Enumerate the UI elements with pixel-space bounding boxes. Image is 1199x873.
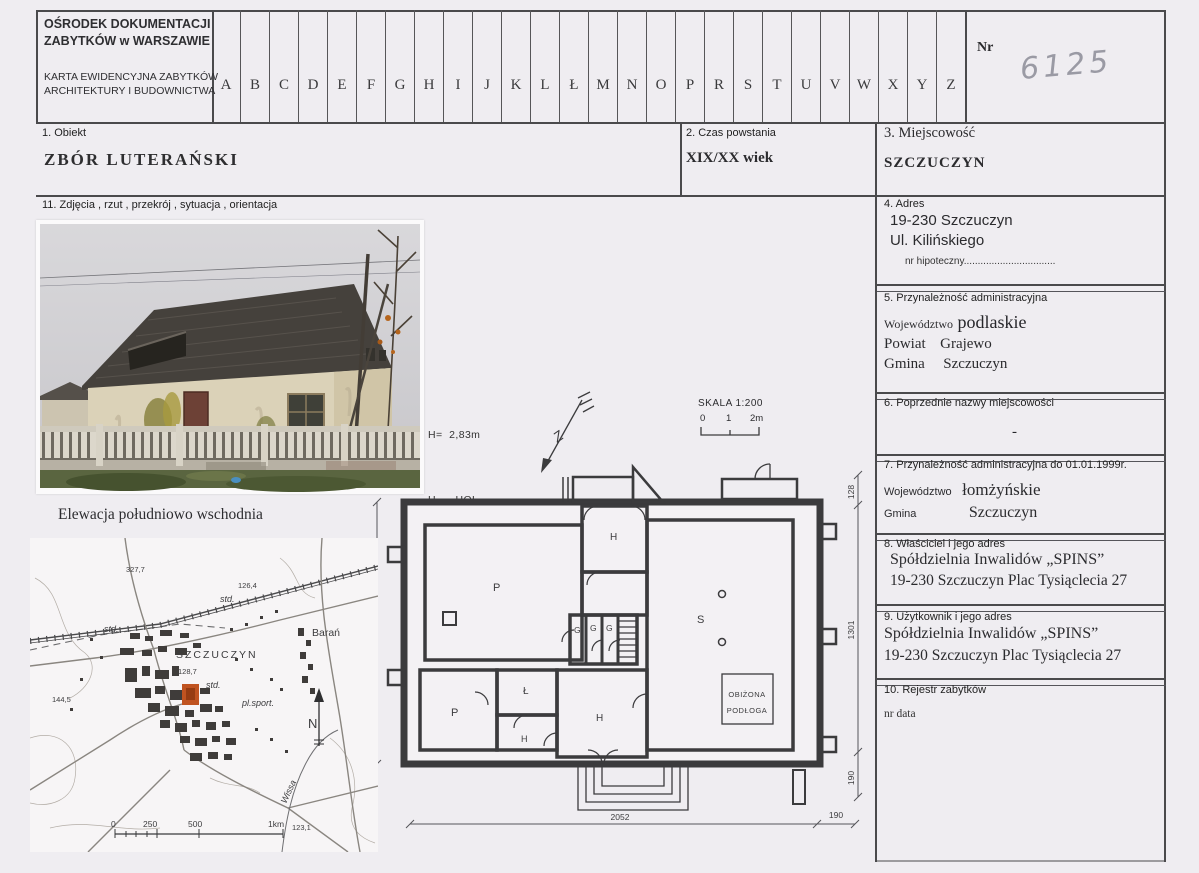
room-label-s: S (697, 614, 704, 626)
letter-cell: U (791, 10, 820, 122)
map-label-sport: pl.sport. (241, 698, 274, 708)
photo-caption: Elewacja południowo wschodnia (58, 506, 263, 524)
divider (36, 195, 1166, 197)
letter-cell: S (733, 10, 762, 122)
map-spot-height: 126,4 (238, 581, 257, 590)
section11-label: 11. Zdjęcia , rzut , przekrój , sytuacja… (42, 199, 277, 211)
section5-label: 5. Przynależność administracyjna (884, 292, 1047, 304)
letter-cell: K (501, 10, 530, 122)
map-label-town: SZCZUCZYN (176, 649, 258, 661)
divider (877, 860, 1166, 862)
letter-cell: C (269, 10, 298, 122)
letter-cell: H (414, 10, 443, 122)
letter-cell: G (385, 10, 414, 122)
scale-tick: 1 (726, 413, 731, 424)
situation-map: 327,7 126,4 std. std. std. SZCZUCZYN 128… (30, 538, 378, 852)
room-label-l: Ł (523, 686, 529, 697)
section4-label: 4. Adres (884, 198, 924, 210)
org-name-line2: ZABYTKÓW w WARSZAWIE (44, 33, 210, 50)
divider (877, 284, 1166, 292)
floor-plan: P H G G G S P Ł H H OBIŻONA PODŁOGA 1301… (365, 452, 880, 857)
admin-key: Powiat (884, 336, 926, 352)
map-spot-height: 128,7 (178, 667, 197, 676)
user-name: Spółdzielnia Inwalidów „SPINS” (884, 625, 1098, 643)
plan-note-line2: PODŁOGA (727, 706, 768, 715)
section10-label: 10. Rejestr zabytków (884, 684, 986, 696)
scale-bar (698, 425, 768, 437)
letter-cell: F (356, 10, 385, 122)
room-label-p2: P (451, 707, 458, 719)
owner-address: 19-230 Szczuczyn Plac Tysiąclecia 27 (890, 572, 1127, 590)
section9-label: 9. Użytkownik i jego adres (884, 611, 1012, 623)
divider (680, 122, 682, 197)
map-label-std: std. (220, 594, 235, 604)
section6-label: 6. Poprzednie nazwy miejscowości (884, 397, 1054, 409)
card-type-line1: KARTA EWIDENCYJNA ZABYTKÓW (44, 70, 218, 84)
map-spot-height: 123,1 (292, 823, 311, 832)
room-label-h-bottom: H (596, 713, 603, 724)
letter-cell: A (212, 10, 240, 122)
letter-cell: E (327, 10, 356, 122)
admin-value: łomżyńskie (962, 480, 1040, 499)
letter-cell: R (704, 10, 733, 122)
map-label-std: std. (104, 624, 119, 634)
room-label-g2: G (590, 623, 597, 633)
map-scale-tick: 0 (111, 819, 116, 829)
letter-cell: N (617, 10, 646, 122)
room-label-h-top: H (610, 532, 617, 543)
room-label-p1: P (493, 582, 500, 594)
room-label-h-small: H (521, 734, 528, 744)
plan-north-letter: Z (549, 427, 566, 446)
letter-cell: B (240, 10, 269, 122)
divider (36, 10, 38, 124)
letter-cell: T (762, 10, 791, 122)
field-object-label: 1. Obiekt (42, 127, 86, 139)
field-town-label: 3. Miejscowość (884, 125, 975, 142)
admin-current: Województwo podlaskie Powiat Grajewo Gmi… (884, 312, 1026, 373)
letter-cell: P (675, 10, 704, 122)
map-scale-tick: 1km (268, 819, 284, 829)
admin-value: Grajewo (940, 336, 992, 352)
dim-right-mid: 1301 (846, 620, 856, 639)
letter-cell: Y (907, 10, 936, 122)
register-note: nr data (884, 708, 916, 720)
map-spot-height: 327,7 (126, 565, 145, 574)
field-period-label: 2. Czas powstania (686, 127, 776, 139)
previous-names-value: - (1012, 424, 1017, 441)
scale-tick: 0 (700, 413, 705, 424)
scale-tick: 2m (750, 413, 763, 424)
admin-value: podlaskie (957, 312, 1026, 332)
map-spot-height: 144,5 (52, 695, 71, 704)
nr-label: Nr (977, 40, 993, 56)
field-town-value: SZCZUCZYN (884, 155, 986, 172)
letter-cell: J (472, 10, 501, 122)
dim-right-top: 128 (846, 485, 856, 499)
mortgage-number: nr hipoteczny...........................… (905, 256, 1055, 267)
dim-bottom-right: 190 (829, 810, 843, 820)
alphabet-index-strip: A B C D E F G H I J K L Ł M N O P R S T … (212, 10, 965, 122)
room-label-g1: G (574, 625, 581, 635)
letter-cell: I (443, 10, 472, 122)
admin-1999: Województwo łomżyńskie Gmina Szczuczyn (884, 480, 1041, 522)
dim-bottom: 2052 (611, 812, 630, 822)
letter-cell: D (298, 10, 327, 122)
letter-cell: L (530, 10, 559, 122)
plan-scale-label: SKALA 1:200 (698, 398, 798, 409)
org-name: OŚRODEK DOKUMENTACJI ZABYTKÓW w WARSZAWI… (44, 16, 210, 50)
map-scale-tick: 500 (188, 819, 202, 829)
admin-key: Gmina (884, 508, 916, 520)
plan-note-line1: OBIŻONA (728, 690, 765, 699)
map-north-letter: N (308, 716, 317, 731)
address-line2: Ul. Kilińskiego (890, 232, 984, 249)
field-object-value: ZBÓR LUTERAŃSKI (44, 150, 239, 170)
address-line1: 19-230 Szczuczyn (890, 212, 1013, 229)
admin-value: Szczuczyn (969, 504, 1037, 521)
letter-cell: M (588, 10, 617, 122)
map-label-std: std. (206, 680, 221, 690)
map-scale-tick: 250 (143, 819, 157, 829)
org-name-line1: OŚRODEK DOKUMENTACJI (44, 16, 210, 33)
letter-cell: V (820, 10, 849, 122)
admin-key: Województwo (884, 486, 952, 498)
nr-value: 6125 (1019, 44, 1114, 87)
section7-label: 7. Przynależność administracyjna do 01.0… (884, 459, 1127, 471)
field-period-value: XIX/XX wiek (686, 150, 773, 167)
section8-label: 8. Właściciel i jego adres (884, 538, 1005, 550)
letter-cell: Z (936, 10, 965, 122)
nr-value-handwritten: 6125 (1020, 48, 1112, 83)
card-type: KARTA EWIDENCYJNA ZABYTKÓW ARCHITEKTURY … (44, 70, 218, 98)
heritage-record-card: OŚRODEK DOKUMENTACJI ZABYTKÓW w WARSZAWI… (0, 0, 1199, 873)
user-address: 19-230 Szczuczyn Plac Tysiąclecia 27 (884, 647, 1121, 665)
letter-cell: W (849, 10, 878, 122)
divider (36, 122, 1166, 124)
divider (1164, 10, 1166, 862)
owner-name: Spółdzielnia Inwalidów „SPINS” (890, 551, 1104, 569)
divider (965, 10, 967, 122)
admin-value: Szczuczyn (943, 356, 1007, 372)
admin-key: Gmina (884, 356, 925, 372)
map-label-village: Barań (312, 627, 340, 639)
letter-cell: O (646, 10, 675, 122)
card-type-line2: ARCHITEKTURY I BUDOWNICTWA (44, 84, 218, 98)
admin-key: Województwo (884, 317, 953, 331)
plan-scale: SKALA 1:200 0 1 2m (698, 398, 798, 443)
letter-cell: X (878, 10, 907, 122)
dim-right-bottom: 190 (846, 771, 856, 785)
room-label-g3: G (606, 623, 613, 633)
letter-cell: Ł (559, 10, 588, 122)
